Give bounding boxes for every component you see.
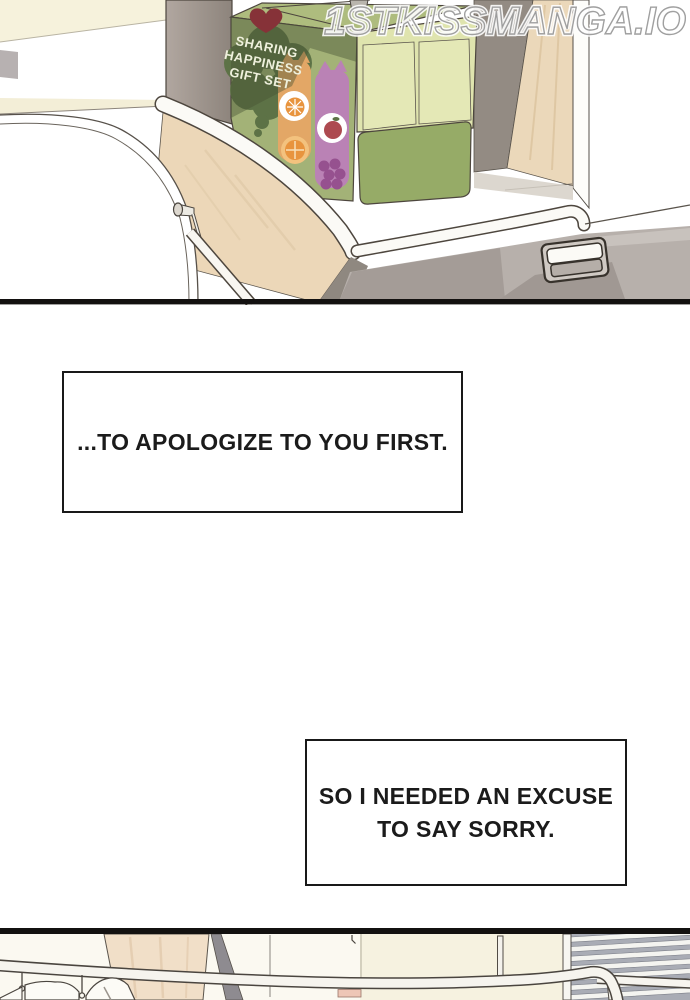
panel2-border — [0, 928, 690, 934]
narration-box-2-line2: TO SAY SORRY. — [377, 813, 555, 846]
narration-box-2-line1: SO I NEEDED AN EXCUSE — [319, 780, 613, 813]
panel1-border — [0, 299, 690, 304]
support-post — [498, 936, 504, 978]
panel-illustration-kitchen-shelf: SHARING HAPPINESS GIFT SET — [0, 0, 690, 305]
white-pillar — [573, 0, 589, 208]
narration-box-2: SO I NEEDED AN EXCUSE TO SAY SORRY. — [305, 739, 627, 886]
lid-latch — [350, 0, 368, 12]
drawer-handle — [541, 237, 609, 283]
narration-box-1: ...TO APOLOGIZE TO YOU FIRST. — [62, 371, 463, 513]
panel-illustration-room-bottom — [0, 925, 690, 1000]
manga-page: SHARING HAPPINESS GIFT SET — [0, 0, 690, 1000]
narration-box-1-text: ...TO APOLOGIZE TO YOU FIRST. — [77, 426, 448, 459]
purple-cat-bottle — [315, 60, 349, 190]
wall-cream — [360, 933, 570, 1000]
blinds-frame — [563, 934, 571, 1000]
salmon-object — [338, 990, 361, 998]
gift-box-compartment — [358, 122, 471, 204]
window-blinds — [560, 929, 690, 1000]
wall-shadow-box — [0, 50, 18, 79]
